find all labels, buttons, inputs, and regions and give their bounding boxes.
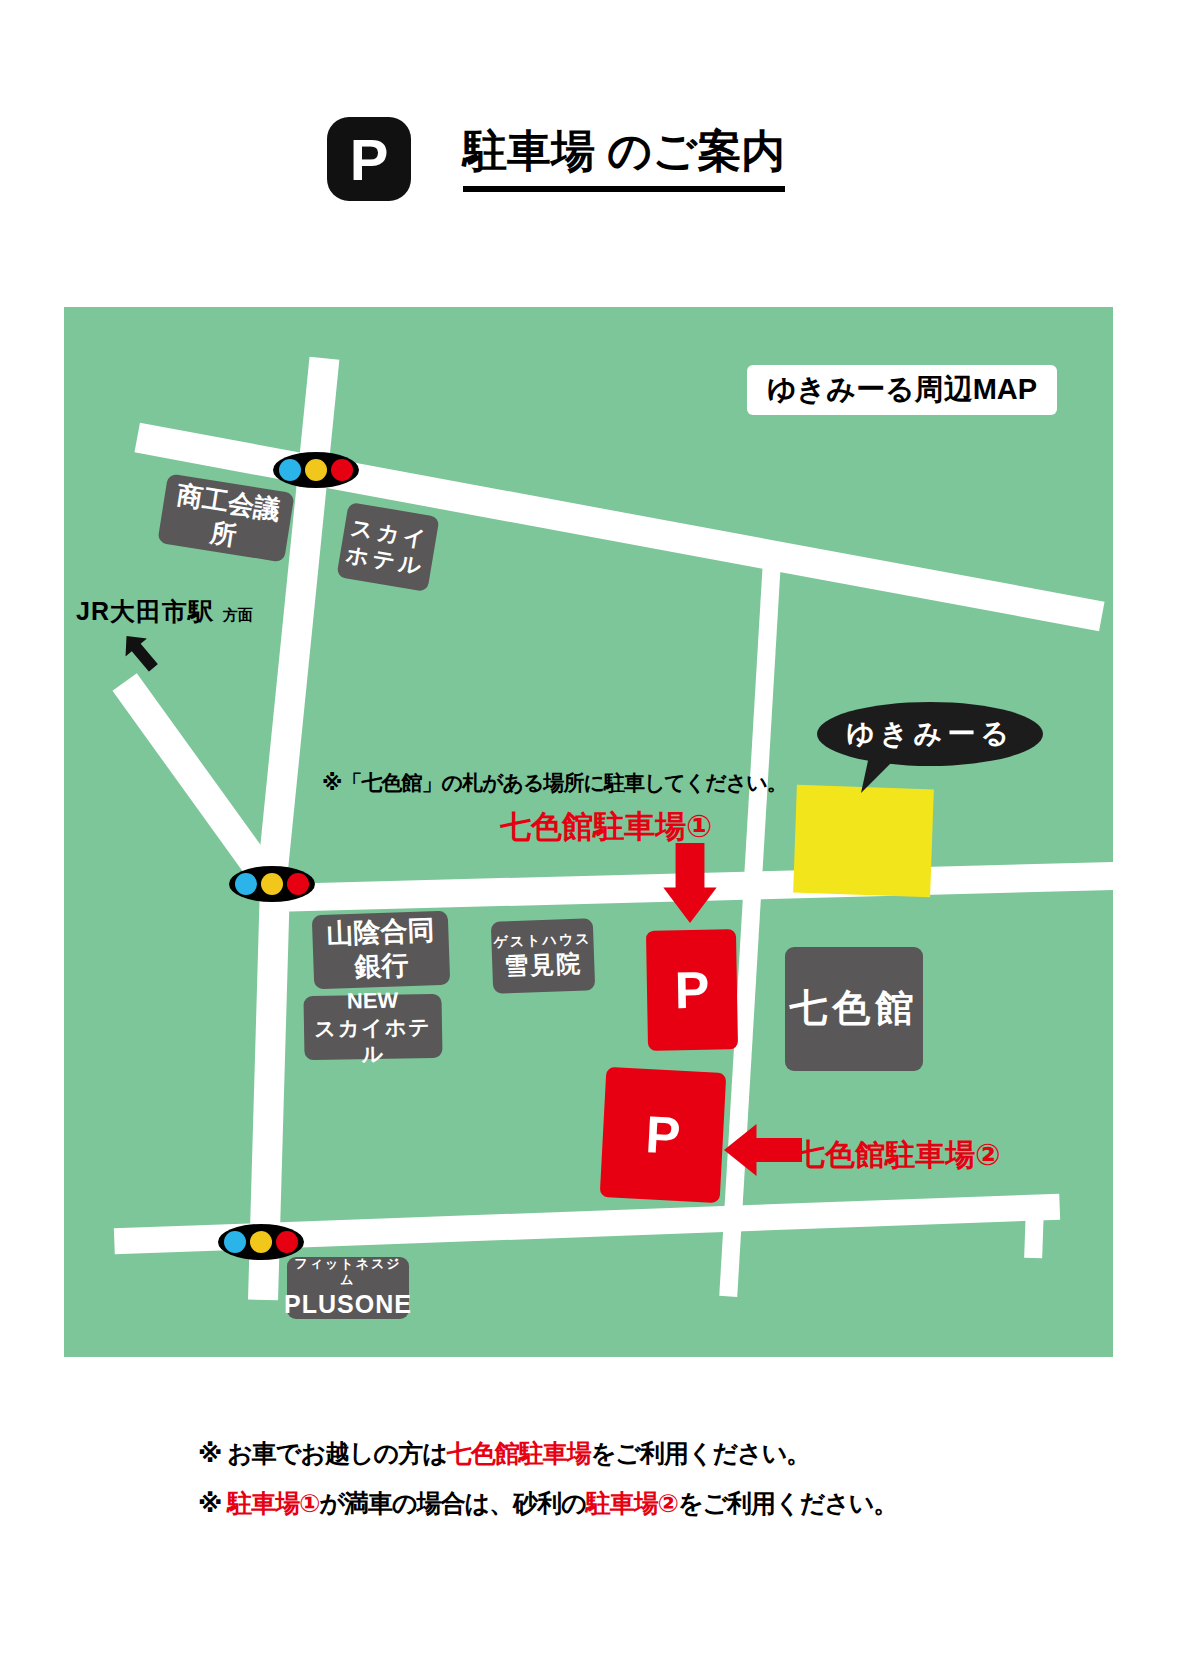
parking-badge-icon: P [327,117,411,201]
note-text: ※ [198,1489,227,1517]
building-label: スカイホテル [304,1013,443,1068]
parking-guide-flyer: P 駐車場 のご案内 ゆきみーる周辺MAP [0,0,1179,1667]
footer-note-1: ※ お車でお越しの方は七色館駐車場をご利用ください。 [198,1437,810,1470]
signal-yellow-lamp [305,459,327,481]
road-bottom-stub [1024,1210,1044,1259]
signal-red-lamp [276,1231,298,1253]
jr-station-name: JR大田市駅 [76,595,214,628]
signal-red-lamp [287,873,309,895]
parking-badge-letter: P [350,126,389,193]
building-label: NEW [347,987,399,1015]
note-text-highlight: 七色館駐車場 [447,1439,591,1467]
note-text: が満車の場合は、砂利の [319,1489,585,1517]
footer-note-2: ※ 駐車場①が満車の場合は、砂利の駐車場②をご利用ください。 [198,1487,897,1520]
building-new-sky-hotel: NEW スカイホテル [303,994,442,1060]
building-fitness-gym-plusone: フィットネスジム PLUSONE [287,1257,409,1319]
parking2-arrow-icon [723,1124,803,1176]
signal-yellow-lamp [261,873,283,895]
traffic-light-bottom [218,1224,304,1260]
traffic-light-top [273,452,359,488]
yukimiru-speech-bubble: ゆきみーる [817,702,1043,766]
parking1-arrow-icon [661,843,719,923]
note-text: をご利用ください。 [591,1439,811,1467]
parking-instruction-note: ※「七色館」の札がある場所に駐車してください。 [322,769,787,797]
speech-bubble-label: ゆきみーる [846,715,1014,753]
signal-blue-lamp [235,873,257,895]
signal-yellow-lamp [250,1231,272,1253]
jr-station-direction: JR大田市駅 方面 [76,595,253,628]
parking2-label: 七色館駐車場② [795,1135,1000,1176]
building-sanin-godo-bank: 山陰合同 銀行 [312,911,450,990]
yukimiru-building-highlight [793,785,934,898]
traffic-light-middle [229,866,315,902]
road-station-diagonal [112,673,279,888]
note-text-highlight: 駐車場② [586,1489,678,1517]
signal-blue-lamp [224,1231,246,1253]
building-label: 七色館 [790,985,919,1033]
note-text: をご利用ください。 [678,1489,898,1517]
signal-red-lamp [331,459,353,481]
building-guesthouse-yukimiin: ゲストハウス 雪見院 [491,918,595,994]
page-title: 駐車場 のご案内 [463,122,785,192]
building-nanairokan: 七色館 [785,947,923,1071]
building-label: 銀行 [354,949,409,985]
note-text-highlight: 駐車場① [227,1489,319,1517]
parking1-label: 七色館駐車場① [500,806,712,848]
building-label: 商工会議所 [158,476,295,560]
building-chamber-of-commerce: 商工会議所 [157,473,294,562]
road-top-vertical [257,357,340,885]
parking-lot-1: P [646,929,738,1051]
parking-p-letter: P [674,960,710,1021]
building-label: PLUSONE [284,1289,412,1320]
building-sky-hotel: スカイ ホテル [336,502,439,592]
building-label: 雪見院 [504,948,583,981]
parking-lot-2: P [600,1067,727,1203]
note-text: ※ お車でお越しの方は [198,1439,447,1467]
parking-p-letter: P [644,1104,682,1166]
station-direction-arrow-icon [116,627,164,677]
signal-blue-lamp [279,459,301,481]
jr-direction-suffix: 方面 [223,606,253,625]
map-title-label: ゆきみーる周辺MAP [747,365,1057,415]
building-label: 山陰合同 [326,914,435,951]
building-label: フィットネスジム [287,1256,409,1289]
area-map: ゆきみーる周辺MAP JR大田市駅 方面 商工会議所 スカイ ホテル 山陰合同 … [64,307,1113,1357]
